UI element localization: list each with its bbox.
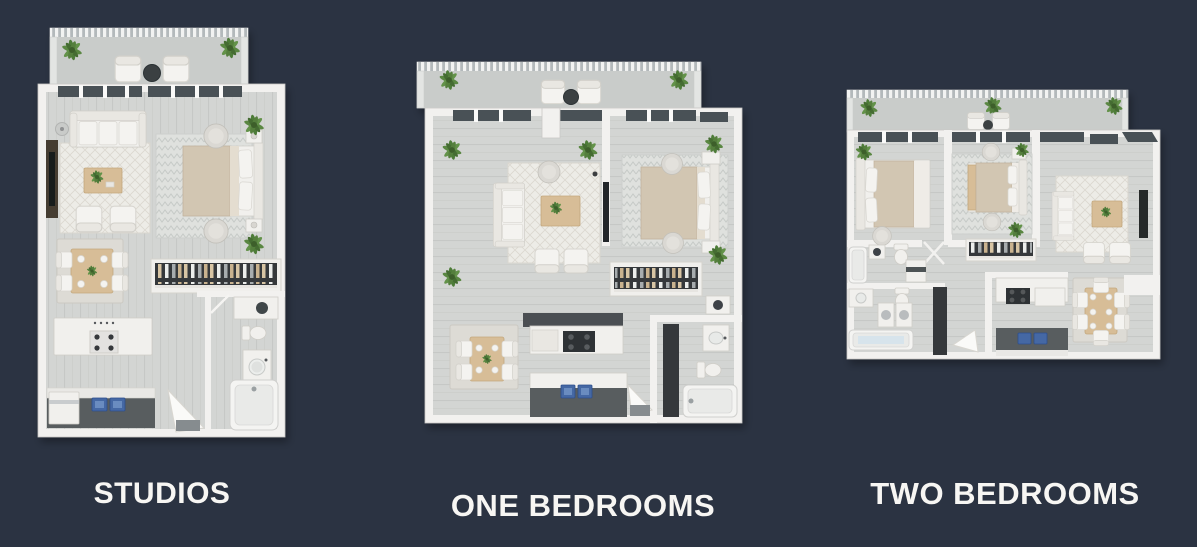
sink <box>1034 333 1047 344</box>
bathtub <box>683 385 737 417</box>
closet <box>610 262 702 296</box>
dining-chair <box>56 252 72 268</box>
dining-area <box>1072 277 1129 345</box>
tv <box>49 152 55 206</box>
pouf <box>204 219 228 243</box>
bed <box>968 160 1027 215</box>
balcony-table <box>983 120 993 130</box>
door-mat <box>176 420 200 431</box>
vanity <box>703 325 729 351</box>
hall-door <box>933 287 947 355</box>
wall-notch <box>1124 275 1160 295</box>
studio-unit <box>38 84 285 437</box>
dining-chair <box>1072 314 1087 329</box>
partition-wall <box>944 130 952 245</box>
bedroom-2 <box>952 143 1032 239</box>
dining-chair <box>456 341 472 357</box>
dining-chair <box>1114 314 1129 329</box>
one-bedroom-unit <box>425 108 742 423</box>
plan-label-two-bedrooms: TWO BEDROOMS <box>855 476 1155 512</box>
balcony-table <box>564 90 579 105</box>
armchair <box>110 206 136 232</box>
tv <box>603 182 609 242</box>
stove <box>90 331 118 353</box>
sofa <box>493 183 524 247</box>
armchair <box>564 249 588 273</box>
door-mat <box>630 405 650 416</box>
pouf <box>662 154 683 175</box>
dining-chair <box>502 364 518 380</box>
bathtub <box>849 330 913 350</box>
pouf <box>204 124 228 148</box>
dining-chair <box>112 252 128 268</box>
armchair <box>1084 243 1105 264</box>
sofa <box>70 111 146 147</box>
pouf <box>538 161 560 183</box>
studio-balcony <box>50 28 248 88</box>
balcony-chair <box>993 113 1010 130</box>
counter-top <box>523 313 623 327</box>
bathtub <box>849 247 867 283</box>
dining-chair <box>1093 330 1108 345</box>
floor-lamp <box>593 172 598 177</box>
balcony-chair <box>577 80 600 103</box>
closet <box>966 239 1036 261</box>
windows <box>58 85 242 98</box>
stove <box>563 331 595 352</box>
bar-counter <box>1035 288 1065 306</box>
balcony-chair <box>163 56 189 82</box>
floor-plan-two-bedroom[interactable] <box>847 90 1160 359</box>
pouf <box>663 233 684 254</box>
washer <box>49 392 79 424</box>
toilet <box>697 362 721 378</box>
column <box>542 108 560 138</box>
two-bedroom-balcony <box>847 90 1128 132</box>
studio-sleeping-area <box>156 114 265 254</box>
armchair <box>1110 243 1131 264</box>
dining-area <box>450 325 518 389</box>
armchair <box>535 249 559 273</box>
dining-chair <box>456 364 472 380</box>
floor-plan-studio[interactable] <box>38 28 285 437</box>
sofa <box>1052 192 1074 241</box>
stove <box>1006 288 1030 304</box>
balcony-chair <box>541 80 564 103</box>
bathtub <box>230 380 278 430</box>
floor-plan-one-bedroom[interactable] <box>417 62 742 423</box>
bed <box>183 142 263 220</box>
sink <box>1018 333 1031 344</box>
dining-chair <box>1093 277 1108 292</box>
armchair <box>76 206 102 232</box>
studio-living-area <box>46 111 150 233</box>
coffee-table <box>541 196 580 226</box>
plan-label-one-bedrooms: ONE BEDROOMS <box>433 488 733 524</box>
nightstand <box>702 152 720 164</box>
floor-plans-graphic <box>0 0 1197 547</box>
balcony-table <box>144 65 161 82</box>
closet <box>151 259 281 293</box>
plan-label-studios: STUDIOS <box>36 477 288 511</box>
floor-plans-section: STUDIOS ONE BEDROOMS TWO BEDROOMS <box>0 0 1197 547</box>
dining-area <box>56 239 128 303</box>
dining-chair <box>502 341 518 357</box>
coffee-table <box>84 168 122 193</box>
bed <box>856 158 930 230</box>
toilet <box>242 326 266 340</box>
pouf <box>982 143 1000 161</box>
balcony-chair <box>968 113 985 130</box>
pouf <box>873 227 892 246</box>
tv <box>1139 190 1148 238</box>
bed <box>641 163 719 243</box>
two-bedroom-unit <box>847 130 1160 359</box>
one-bedroom-balcony <box>417 62 701 108</box>
tall-cabinet <box>663 324 679 417</box>
dining-chair <box>56 275 72 291</box>
dining-chair <box>1072 292 1087 307</box>
pouf <box>983 213 1001 231</box>
dining-chair <box>112 275 128 291</box>
balcony-chair <box>115 56 141 82</box>
dining-table <box>1085 288 1117 334</box>
partition-wall <box>1032 130 1040 245</box>
